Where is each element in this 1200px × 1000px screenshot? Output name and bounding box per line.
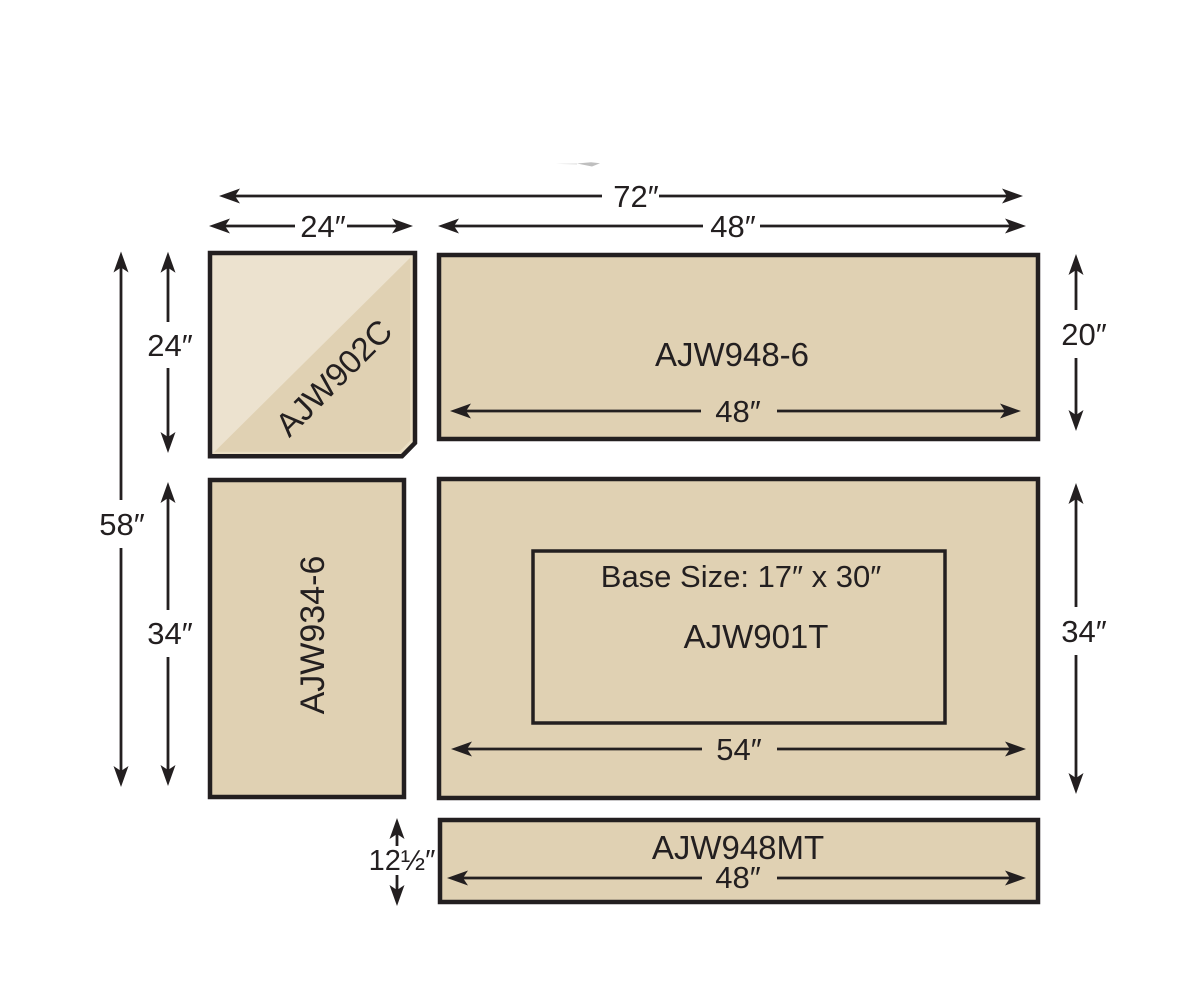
svg-text:48″: 48″ bbox=[715, 860, 760, 895]
svg-text:AJW948-6: AJW948-6 bbox=[655, 336, 809, 373]
svg-text:20″: 20″ bbox=[1061, 317, 1106, 352]
svg-text:12½″: 12½″ bbox=[369, 845, 436, 877]
svg-text:58″: 58″ bbox=[99, 507, 144, 542]
svg-text:54″: 54″ bbox=[716, 732, 761, 767]
svg-text:AJW934-6: AJW934-6 bbox=[294, 556, 332, 715]
svg-text:24″: 24″ bbox=[300, 209, 345, 244]
svg-text:24″: 24″ bbox=[147, 328, 192, 363]
svg-text:Base Size: 17″ x 30″: Base Size: 17″ x 30″ bbox=[601, 559, 881, 594]
svg-text:48″: 48″ bbox=[710, 209, 755, 244]
svg-text:48″: 48″ bbox=[715, 394, 760, 429]
svg-text:72″: 72″ bbox=[613, 179, 658, 214]
svg-text:34″: 34″ bbox=[1061, 614, 1106, 649]
svg-text:34″: 34″ bbox=[147, 616, 192, 651]
svg-text:AJW901T: AJW901T bbox=[684, 618, 829, 655]
